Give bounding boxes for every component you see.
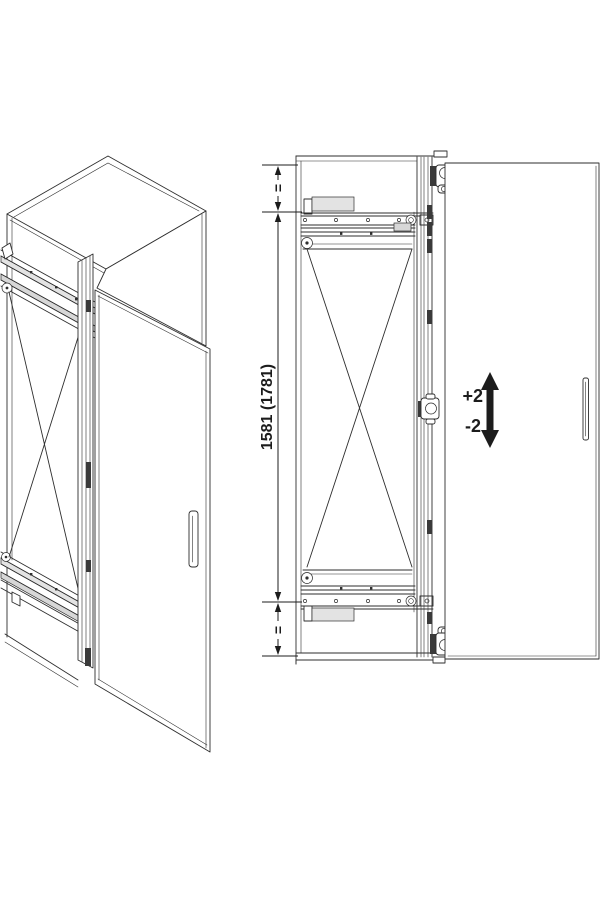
height-dimension-label: 1581 (1781) (259, 364, 276, 450)
top-damper (312, 197, 354, 211)
bottom-rail-assembly (301, 570, 433, 621)
bottom-slide-rail (1, 552, 83, 634)
isometric-view (1, 156, 210, 752)
bottom-margin-label: = (270, 626, 286, 634)
top-margin-dimension: = (270, 166, 286, 211)
adjustment-plus-label: +2 (462, 386, 483, 406)
top-rail-assembly (301, 197, 433, 249)
rail-screw-holes-bottom (303, 599, 400, 602)
technical-diagram-page: = 1581 (1781) = +2 -2 (0, 0, 600, 900)
technical-diagram: = 1581 (1781) = +2 -2 (0, 0, 600, 900)
rail-end-bracket-icon (2, 243, 13, 259)
bottom-damper (312, 608, 354, 621)
door-handle-elevation (583, 378, 589, 440)
door-panel (95, 290, 210, 752)
adjustment-cam-bottom-icon (406, 596, 416, 606)
profile-foot-step (433, 657, 445, 663)
rail-end-hook-icon (12, 592, 20, 606)
rail-screw-holes (303, 218, 400, 221)
cabinet-bottom-edge (5, 634, 78, 687)
opening-cross-brace (9, 292, 80, 597)
door-handle (189, 511, 198, 567)
elevation-view (296, 151, 599, 664)
profile-top-cap (434, 151, 447, 157)
bottom-margin-dimension: = (270, 603, 286, 655)
top-margin-label: = (270, 184, 286, 192)
adjustment-minus-label: -2 (465, 416, 481, 436)
opening-cross-brace-elevation (307, 249, 412, 567)
height-dimension: 1581 (1781) (259, 213, 281, 601)
pivot-profile (78, 254, 93, 668)
door-panel-elevation (445, 163, 599, 659)
